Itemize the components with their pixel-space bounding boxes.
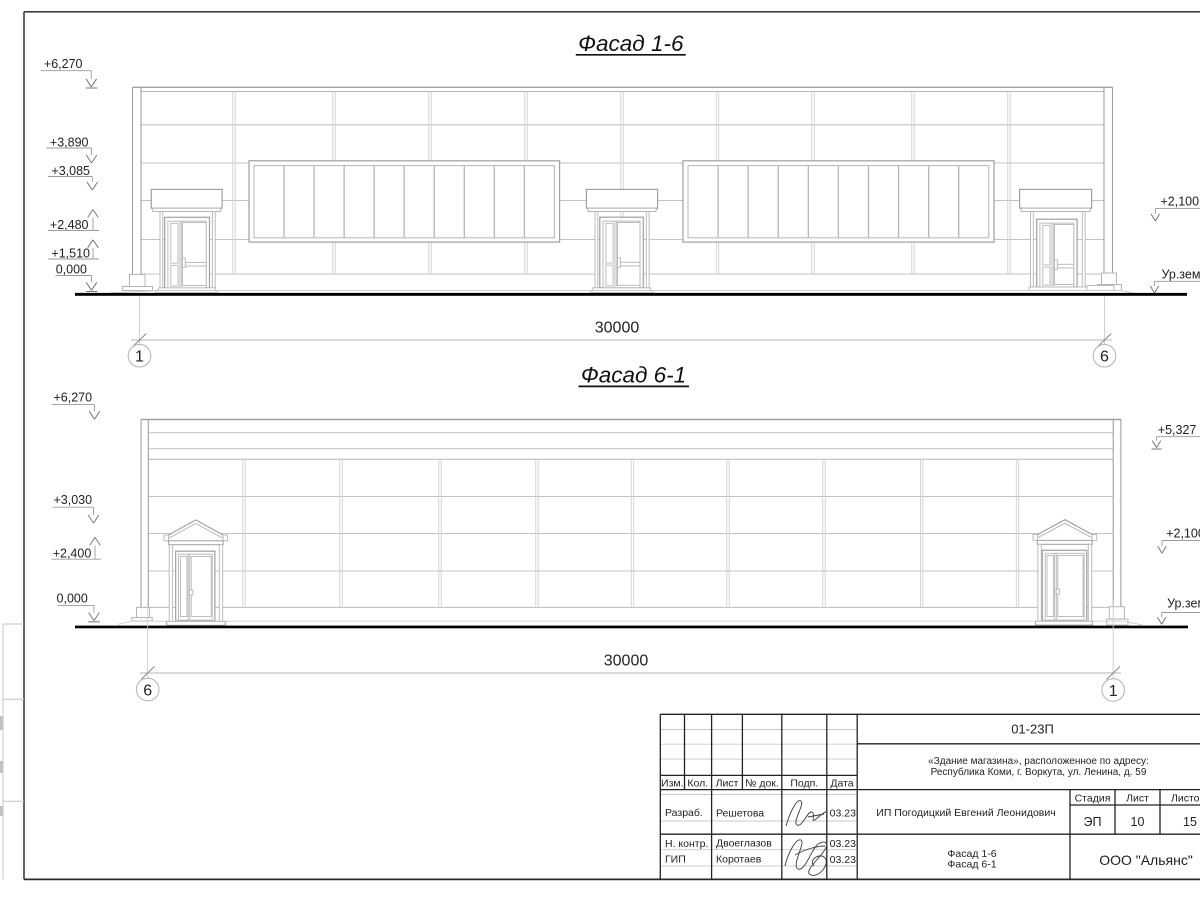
svg-text:+3,890: +3,890 <box>50 136 89 150</box>
svg-text:03.23: 03.23 <box>830 854 856 866</box>
svg-text:Н. контр.: Н. контр. <box>665 838 708 850</box>
svg-text:Подп.: Подп. <box>790 778 818 790</box>
svg-text:Двоеглазов: Двоеглазов <box>716 837 772 849</box>
svg-text:Фасад 6-1: Фасад 6-1 <box>581 363 686 388</box>
svg-text:10: 10 <box>1131 815 1145 829</box>
svg-text:1: 1 <box>1109 683 1118 700</box>
svg-text:+6,270: +6,270 <box>44 57 83 71</box>
svg-text:Изм.: Изм. <box>661 778 684 790</box>
svg-text:6: 6 <box>143 682 152 699</box>
svg-text:30000: 30000 <box>595 320 640 337</box>
svg-text:1: 1 <box>135 349 144 366</box>
svg-text:ООО "Альянс": ООО "Альянс" <box>1099 852 1193 868</box>
svg-text:Фасад 1-6: Фасад 1-6 <box>578 31 684 56</box>
svg-text:0,000: 0,000 <box>57 591 88 605</box>
svg-text:+1,510: +1,510 <box>51 247 90 261</box>
svg-text:03.23: 03.23 <box>830 838 856 850</box>
svg-text:Ур.земли: Ур.земли <box>1162 267 1200 281</box>
svg-text:Разраб.: Разраб. <box>665 807 703 819</box>
svg-text:«Здание магазина», расположенн: «Здание магазина», расположенное по адре… <box>928 756 1149 767</box>
svg-text:Ур.земли: Ур.земли <box>1167 596 1200 610</box>
svg-text:0,000: 0,000 <box>56 263 87 277</box>
svg-text:+2,100: +2,100 <box>1161 195 1200 209</box>
svg-text:Кол.: Кол. <box>687 778 708 790</box>
svg-text:Дата: Дата <box>830 778 853 790</box>
svg-text:+5,327: +5,327 <box>1158 423 1197 437</box>
svg-text:Листов: Листов <box>1171 792 1200 804</box>
svg-text:ИП Погодицкий Евгений Леонидов: ИП Погодицкий Евгений Леонидович <box>876 807 1055 819</box>
svg-text:ЭП: ЭП <box>1084 815 1102 829</box>
svg-text:+2,480: +2,480 <box>50 218 89 232</box>
svg-text:01-23П: 01-23П <box>1011 722 1054 737</box>
svg-text:Фасад 6-1: Фасад 6-1 <box>947 859 996 871</box>
svg-text:Лист: Лист <box>1126 792 1149 804</box>
svg-text:6: 6 <box>1100 349 1109 366</box>
svg-text:Решетова: Решетова <box>716 807 764 819</box>
svg-text:15: 15 <box>1183 815 1197 829</box>
svg-text:Республика Коми, г. Воркута, у: Республика Коми, г. Воркута, ул. Ленина,… <box>931 766 1147 778</box>
svg-text:+6,270: +6,270 <box>54 391 93 405</box>
svg-text:+2,400: +2,400 <box>53 547 92 561</box>
svg-text:30000: 30000 <box>604 653 649 670</box>
svg-text:+3,085: +3,085 <box>51 164 90 178</box>
svg-text:+3,030: +3,030 <box>54 493 93 507</box>
svg-text:03.23: 03.23 <box>830 807 856 819</box>
svg-text:Стадия: Стадия <box>1075 792 1111 804</box>
svg-text:Коротаев: Коротаев <box>716 853 762 865</box>
svg-text:+2,100: +2,100 <box>1166 526 1200 540</box>
svg-text:№ док.: № док. <box>745 778 779 790</box>
svg-text:ГИП: ГИП <box>665 853 686 865</box>
svg-text:Лист: Лист <box>716 778 739 790</box>
